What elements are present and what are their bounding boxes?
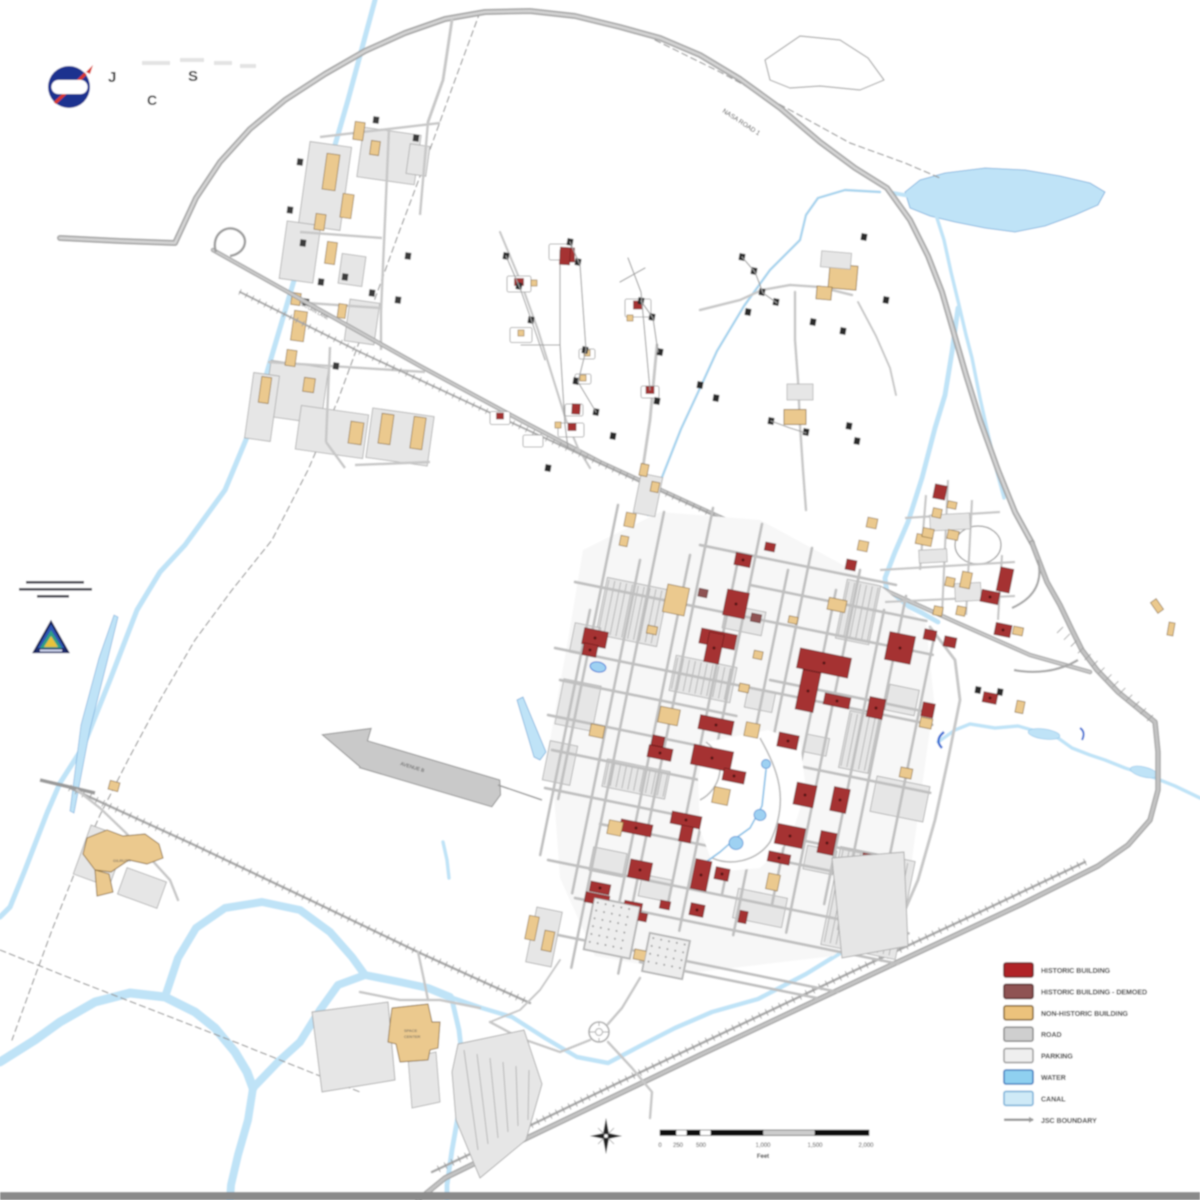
svg-text:HISTORIC BUILDING: HISTORIC BUILDING — [1041, 968, 1111, 975]
svg-text:ROAD: ROAD — [1041, 1032, 1062, 1039]
svg-text:S: S — [188, 68, 198, 85]
svg-text:GILRUTH: GILRUTH — [113, 858, 131, 863]
svg-text:2,000: 2,000 — [858, 1143, 874, 1149]
svg-text:C: C — [147, 92, 157, 108]
svg-text:500: 500 — [696, 1143, 707, 1149]
svg-text:NON-HISTORIC BUILDING: NON-HISTORIC BUILDING — [1041, 1011, 1129, 1018]
svg-text:1,500: 1,500 — [807, 1143, 823, 1149]
svg-text:250: 250 — [673, 1143, 684, 1149]
svg-text:WATER: WATER — [1041, 1075, 1066, 1082]
svg-text:J: J — [108, 69, 116, 86]
svg-text:JSC BOUNDARY: JSC BOUNDARY — [1041, 1118, 1097, 1125]
svg-text:CANAL: CANAL — [1041, 1096, 1066, 1103]
svg-text:Feet: Feet — [757, 1154, 769, 1160]
svg-text:CENTER: CENTER — [404, 1034, 421, 1039]
svg-text:HISTORIC BUILDING - DEMOED: HISTORIC BUILDING - DEMOED — [1041, 989, 1147, 996]
svg-text:PARKING: PARKING — [1041, 1054, 1073, 1061]
svg-text:1,000: 1,000 — [755, 1143, 771, 1149]
svg-text:SPACE: SPACE — [404, 1028, 418, 1033]
